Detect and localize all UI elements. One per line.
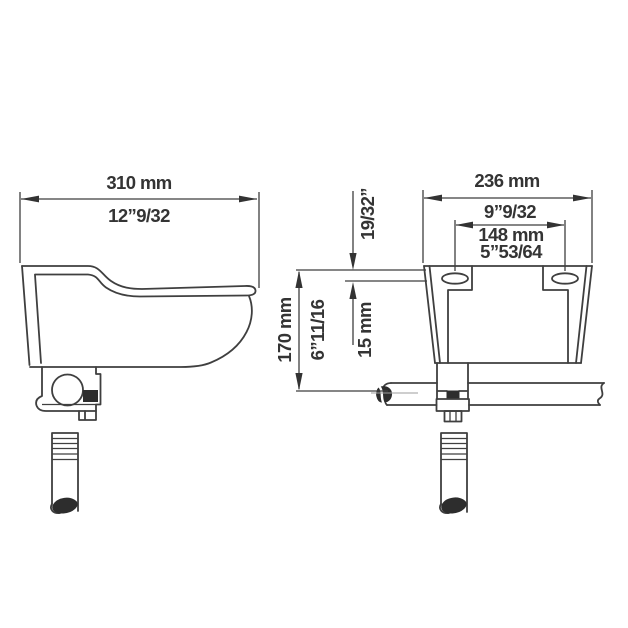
clamp-nut xyxy=(445,411,462,422)
horizontal-pipe xyxy=(371,383,604,405)
bowl-side-view xyxy=(22,266,256,513)
clamp-lock-block xyxy=(84,391,98,402)
dim-front-width-mm-label: 236 mm xyxy=(474,170,539,191)
bowl-rim-outline xyxy=(22,266,256,297)
dim-side-width: 310 mm 12”9/32 xyxy=(20,172,259,288)
dim-side-width-in-label: 12”9/32 xyxy=(108,205,170,226)
arrowhead-right xyxy=(547,222,565,229)
clamp-tab xyxy=(79,411,96,420)
mounting-hole-left xyxy=(442,273,468,283)
mounting-hole-right xyxy=(552,273,578,283)
front-left-wall-inner xyxy=(430,266,441,363)
bowl-body-curve xyxy=(30,296,252,367)
dim-top-to-hole-in-label: 19/32” xyxy=(357,188,378,240)
dim-top-to-hole-inch: 19/32” xyxy=(349,188,378,270)
dim-height-mm-label: 170 mm xyxy=(274,297,295,362)
pipe-break-left-symbol xyxy=(377,387,392,403)
front-right-wall-outer xyxy=(581,266,592,363)
drawing-canvas: 310 mm 12”9/32 236 mm 9”9/32 148 mm 5”53… xyxy=(0,0,628,628)
pipe-threads xyxy=(441,439,467,460)
arrowhead-right xyxy=(239,196,257,203)
arrowhead-left xyxy=(456,222,474,229)
pipe-break-right-line xyxy=(598,383,604,405)
flange-recess-right xyxy=(543,266,568,363)
dim-height: 170 mm 6”11/16 xyxy=(274,270,427,391)
dim-top-to-hole-mm-label: 15 mm xyxy=(354,302,375,358)
dim-side-width-mm-label: 310 mm xyxy=(106,172,171,193)
riser-pipe-right xyxy=(440,433,467,513)
arrowhead-left xyxy=(21,196,39,203)
dim-hole-spacing: 148 mm 5”53/64 xyxy=(455,220,565,271)
pipe-cross-section-circle xyxy=(52,375,83,406)
clamp-lock-block-front xyxy=(447,391,459,399)
arrowhead-up xyxy=(349,282,356,299)
arrowhead-bottom xyxy=(295,373,302,391)
dim-front-width-in-label: 9”9/32 xyxy=(484,201,536,222)
pipe-clamp-front xyxy=(437,363,470,422)
arrowhead-left xyxy=(424,195,442,202)
clamp-lower-plate xyxy=(437,399,470,411)
pipe-break-symbol xyxy=(53,498,77,513)
technical-drawing: 310 mm 12”9/32 236 mm 9”9/32 148 mm 5”53… xyxy=(0,0,628,628)
clamp-nut-facets xyxy=(450,411,456,422)
arrowhead-top xyxy=(295,271,302,289)
flange-recess-left xyxy=(448,266,472,363)
dim-top-to-hole-mm: 15 mm xyxy=(349,282,375,358)
bowl-front-view xyxy=(371,266,604,513)
bowl-back-wall-inner xyxy=(35,275,41,363)
arrowhead-right xyxy=(573,195,591,202)
pipe-threads xyxy=(52,439,78,460)
dim-hole-spacing-in-label: 5”53/64 xyxy=(480,241,543,262)
dim-height-in-label: 6”11/16 xyxy=(307,299,328,360)
riser-pipe-left xyxy=(51,433,78,513)
pipe-break-symbol xyxy=(442,498,466,513)
bowl-back-wall-outer xyxy=(22,266,30,365)
arrowhead-down xyxy=(349,253,356,270)
